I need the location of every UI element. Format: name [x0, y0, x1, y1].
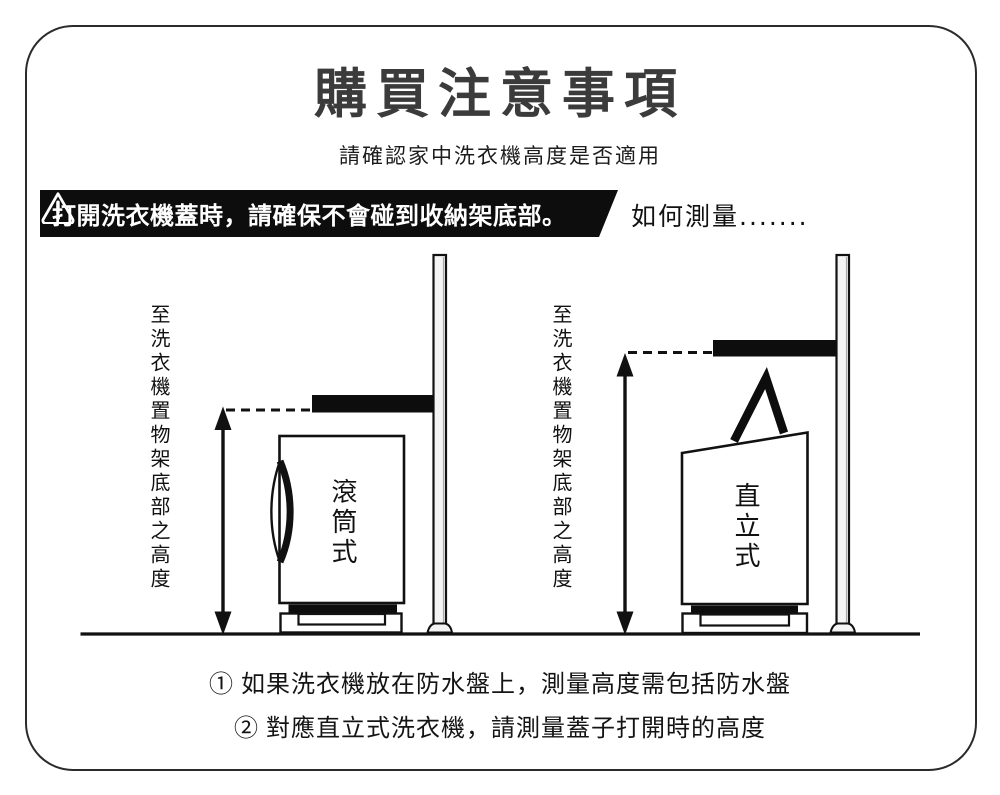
machine-label-front-load: 滾筒式	[329, 478, 355, 568]
top-load-diagram	[617, 255, 856, 635]
machine-label-top-load: 直立式	[732, 482, 758, 572]
height-label-top-load: 至洗衣機置物架底部之高度	[550, 304, 570, 592]
front-load-diagram	[215, 255, 453, 635]
open-lid-icon	[734, 378, 784, 441]
support-pole-left	[434, 255, 447, 625]
support-pole-right	[837, 255, 850, 625]
washer-feet-right	[691, 606, 798, 614]
pole-foot-left	[428, 624, 453, 633]
height-label-front-load: 至洗衣機置物架底部之高度	[148, 304, 168, 592]
footnotes: ① 如果洗衣機放在防水盤上，測量高度需包括防水盤 ② 對應直立式洗衣機，請測量蓋…	[0, 664, 1000, 752]
shelf-bottom-bar-left	[312, 395, 434, 413]
note-2: ② 對應直立式洗衣機，請測量蓋子打開時的高度	[0, 708, 1000, 743]
note-1: ① 如果洗衣機放在防水盤上，測量高度需包括防水盤	[0, 664, 1000, 699]
infographic-page: 購買注意事項 請確認家中洗衣機高度是否適用 打開洗衣機蓋時，請確保不會碰到收納架…	[0, 0, 1000, 795]
washer-feet-left	[289, 605, 398, 614]
pole-foot-right	[831, 624, 856, 633]
shelf-bottom-bar-right	[713, 340, 837, 357]
